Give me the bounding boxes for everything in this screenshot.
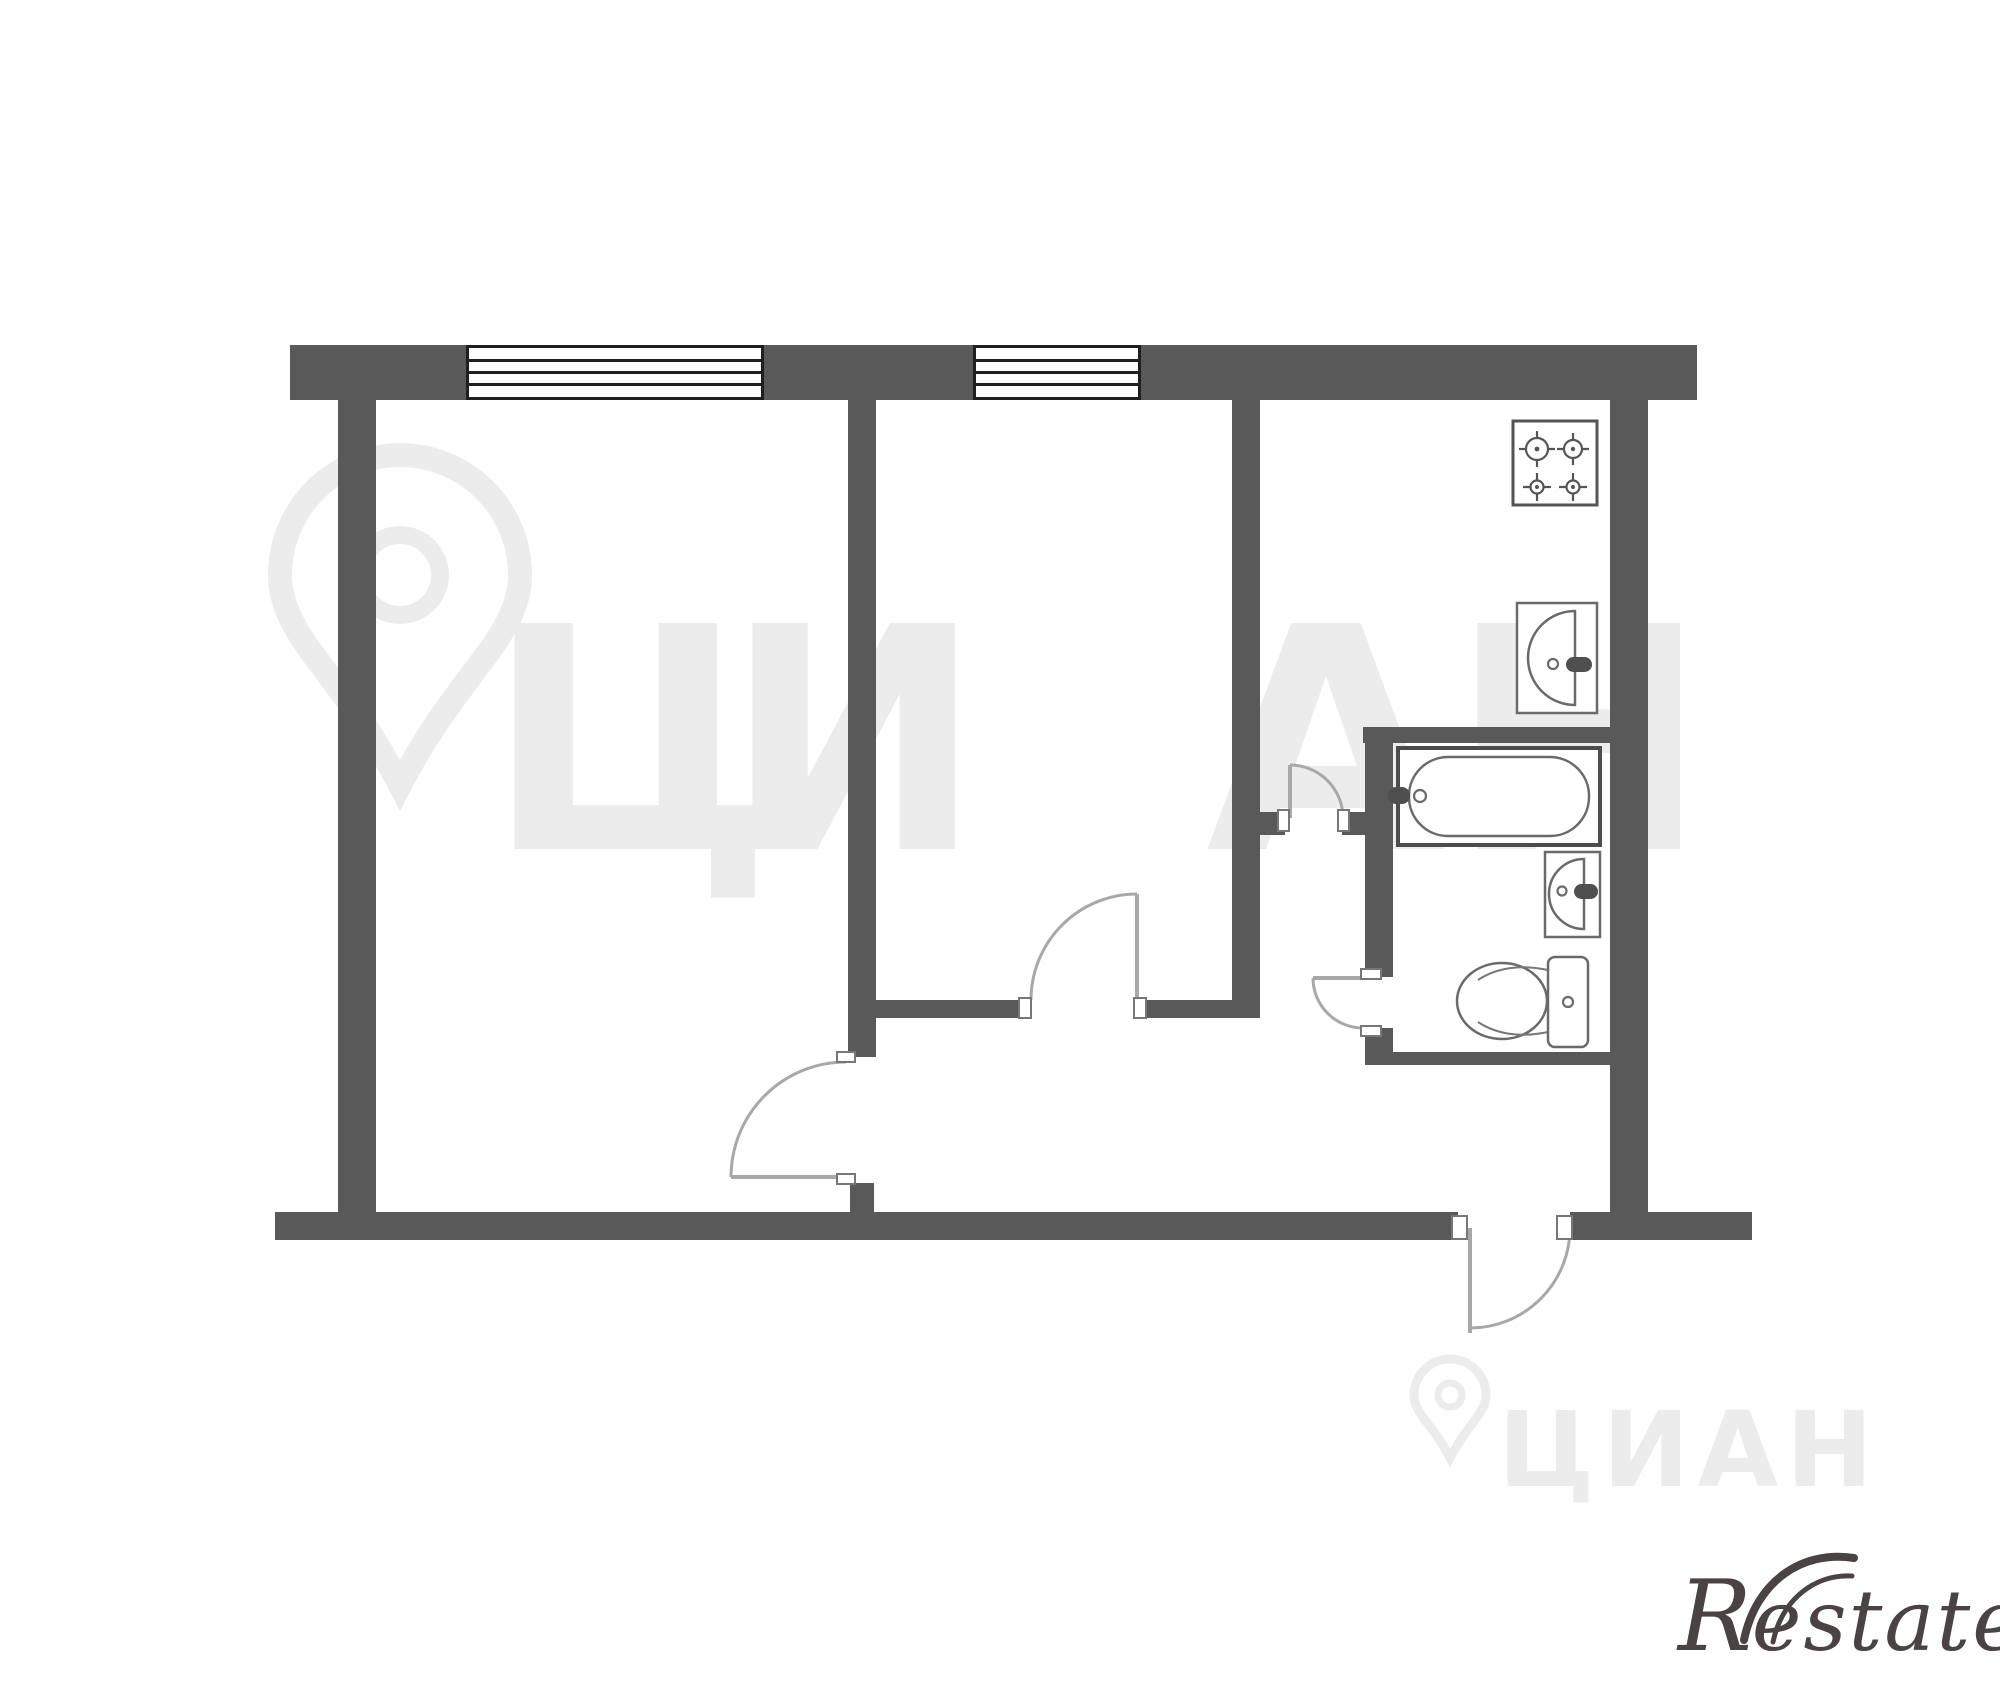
bathtub-icon	[1388, 748, 1600, 845]
kitchen-sink-icon	[1517, 603, 1597, 713]
apartment-floor-plan: Ц И А Н ЦИАН	[0, 0, 2000, 1683]
fixtures-and-doors-layer	[0, 0, 2000, 1683]
door-bathroom	[1313, 969, 1381, 1036]
door-kitchen	[1278, 765, 1349, 831]
door-bedroom	[1019, 894, 1146, 1018]
door-entrance	[1452, 1216, 1572, 1333]
toilet-icon	[1457, 957, 1588, 1047]
stove-icon	[1513, 421, 1597, 505]
bathroom-sink-icon	[1545, 852, 1600, 937]
restate-logo-swoosh-icon	[1726, 1540, 1876, 1660]
door-living-room	[731, 1052, 855, 1184]
restate-logo: Restate	[1678, 1568, 2000, 1683]
